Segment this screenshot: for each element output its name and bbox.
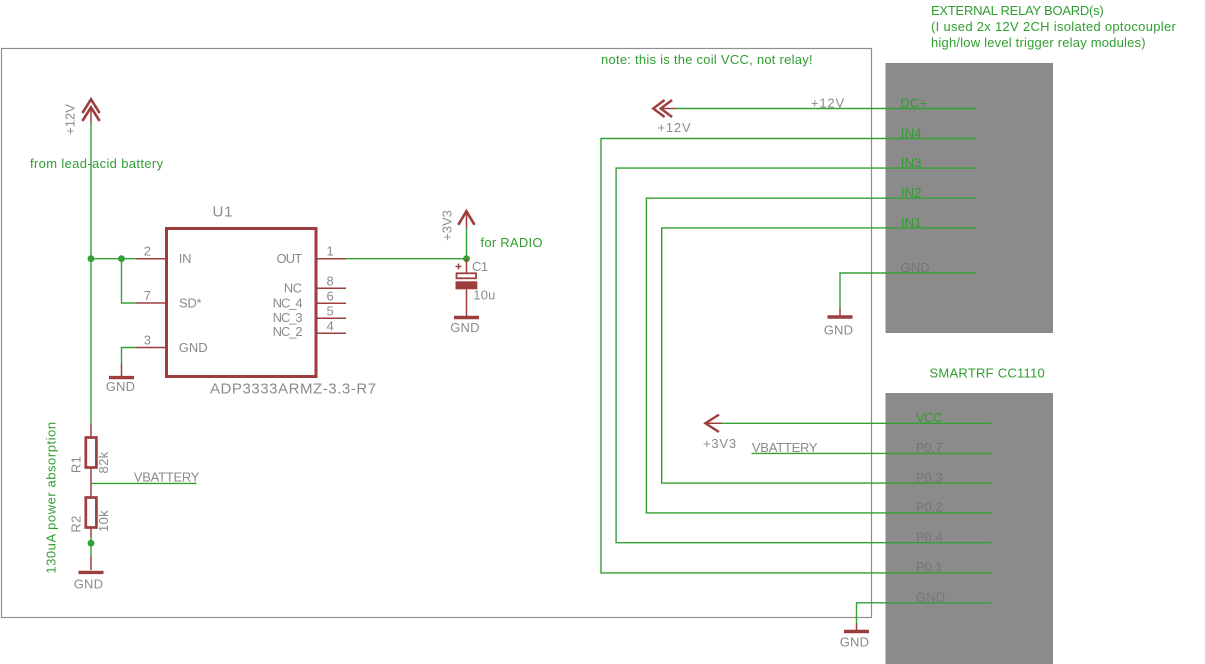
svg-text:10k: 10k (96, 510, 111, 532)
svg-text:for RADIO: for RADIO (481, 235, 543, 250)
svg-text:4: 4 (327, 319, 334, 334)
svg-text:IN4: IN4 (901, 125, 922, 140)
svg-text:GND: GND (74, 576, 104, 591)
svg-text:130uA power absorption: 130uA power absorption (43, 421, 58, 573)
svg-text:1: 1 (327, 244, 334, 259)
svg-text:NC_2: NC_2 (273, 324, 303, 339)
svg-text:GND: GND (179, 340, 208, 355)
svg-text:GND: GND (106, 379, 136, 394)
svg-text:C1: C1 (472, 259, 488, 274)
svg-text:NC_3: NC_3 (273, 310, 303, 325)
svg-text:R1: R1 (68, 456, 83, 473)
svg-text:3: 3 (144, 333, 151, 348)
svg-text:7: 7 (144, 288, 151, 303)
svg-text:IN1: IN1 (901, 215, 922, 230)
svg-text:2: 2 (144, 244, 151, 259)
svg-text:+12V: +12V (62, 104, 77, 135)
svg-text:U1: U1 (213, 204, 234, 221)
svg-text:P0.4: P0.4 (916, 530, 943, 545)
svg-text:NC: NC (284, 280, 302, 295)
svg-text:SD*: SD* (179, 295, 201, 310)
svg-text:+3V3: +3V3 (439, 210, 454, 241)
svg-text:SMARTRF CC1110: SMARTRF CC1110 (930, 366, 1045, 381)
svg-text:8: 8 (327, 274, 334, 289)
svg-text:5: 5 (327, 304, 334, 319)
svg-text:82k: 82k (96, 451, 111, 473)
svg-text:6: 6 (327, 289, 334, 304)
svg-text:IN: IN (179, 251, 191, 266)
svg-text:from lead-acid battery: from lead-acid battery (30, 156, 164, 171)
svg-text:OUT: OUT (276, 251, 302, 266)
svg-text:+12V: +12V (811, 96, 845, 111)
svg-text:GND: GND (900, 260, 930, 275)
svg-text:VCC: VCC (916, 410, 942, 425)
svg-text:+3V3: +3V3 (703, 436, 737, 451)
svg-text:VBATTERY: VBATTERY (134, 469, 200, 484)
svg-text:note: this is the coil VCC, no: note: this is the coil VCC, not relay! (601, 52, 813, 67)
svg-text:VBATTERY: VBATTERY (752, 440, 818, 455)
svg-text:GND: GND (916, 590, 946, 605)
svg-text:EXTERNAL RELAY BOARD(s): EXTERNAL RELAY BOARD(s) (931, 3, 1103, 18)
svg-text:IN3: IN3 (901, 155, 922, 170)
svg-text:P0.2: P0.2 (916, 500, 943, 515)
svg-text:P0.1: P0.1 (916, 560, 943, 575)
svg-text:high/low level trigger relay m: high/low level trigger relay modules) (931, 35, 1146, 50)
svg-text:P0.7: P0.7 (916, 440, 943, 455)
svg-text:DC+: DC+ (900, 95, 927, 110)
svg-text:IN2: IN2 (901, 185, 922, 200)
svg-text:10u: 10u (473, 288, 495, 303)
svg-text:ADP3333ARMZ-3.3-R7: ADP3333ARMZ-3.3-R7 (210, 381, 377, 398)
svg-text:GND: GND (840, 635, 870, 650)
svg-text:R2: R2 (68, 515, 83, 532)
svg-text:P0.3: P0.3 (916, 470, 943, 485)
svg-text:(I used 2x 12V 2CH isolated op: (I used 2x 12V 2CH isolated optocoupler (931, 19, 1176, 34)
svg-text:GND: GND (450, 320, 480, 335)
svg-text:GND: GND (824, 323, 854, 338)
svg-text:NC_4: NC_4 (273, 295, 303, 310)
svg-text:+12V: +12V (658, 120, 692, 135)
